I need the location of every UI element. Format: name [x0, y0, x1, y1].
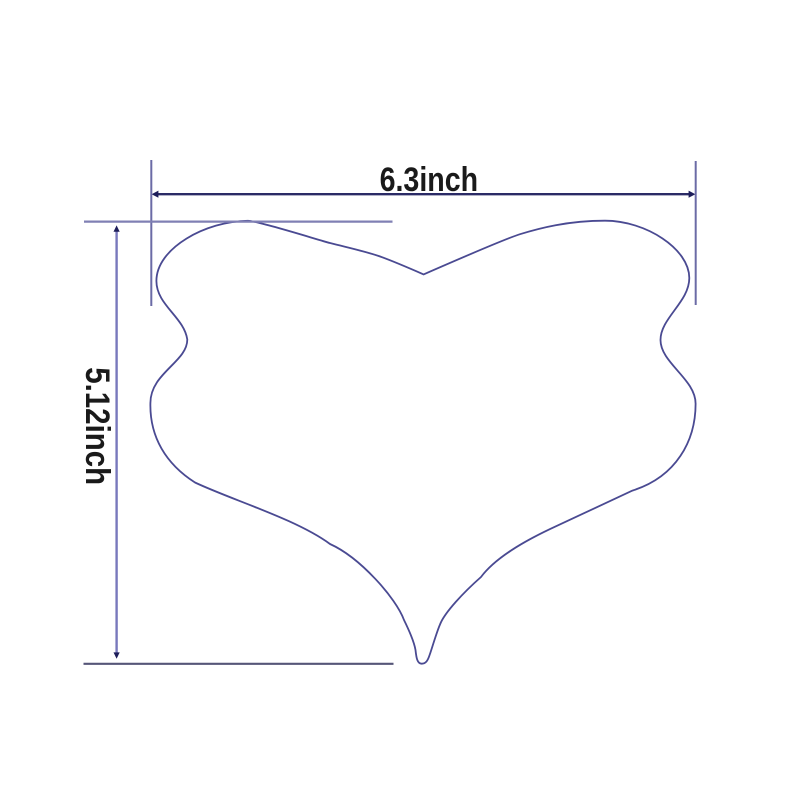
- svg-text:6.3inch: 6.3inch: [380, 161, 479, 199]
- svg-text:5.12inch: 5.12inch: [78, 367, 116, 485]
